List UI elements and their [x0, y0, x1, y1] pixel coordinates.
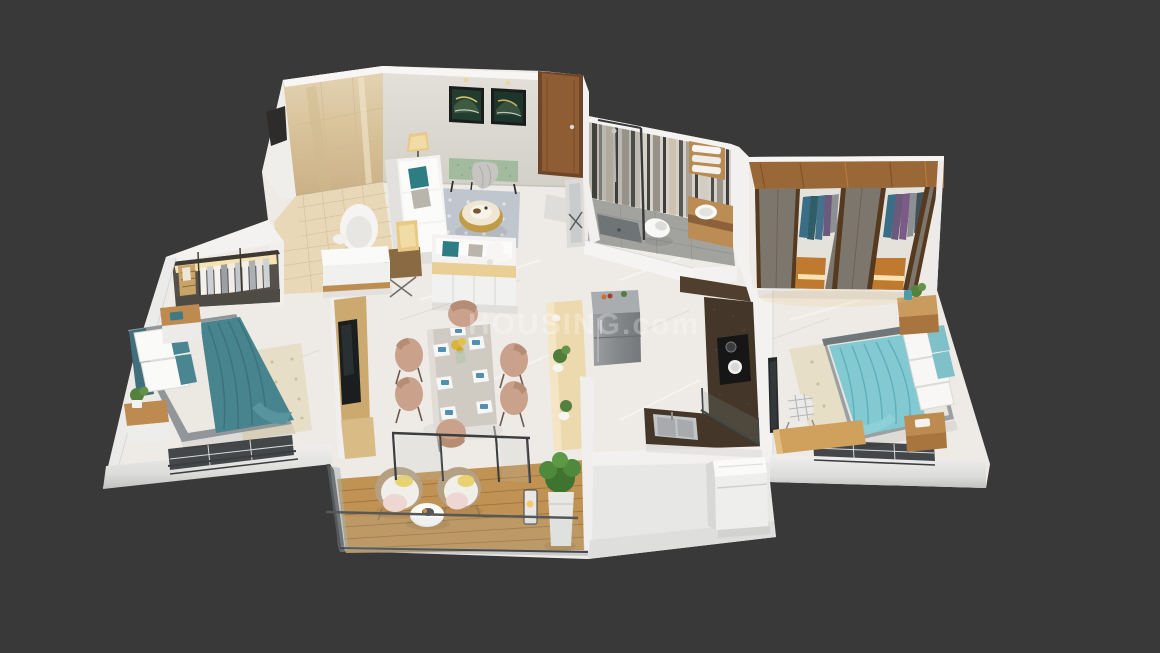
svg-text:HOUSING.com: HOUSING.com: [468, 308, 700, 341]
